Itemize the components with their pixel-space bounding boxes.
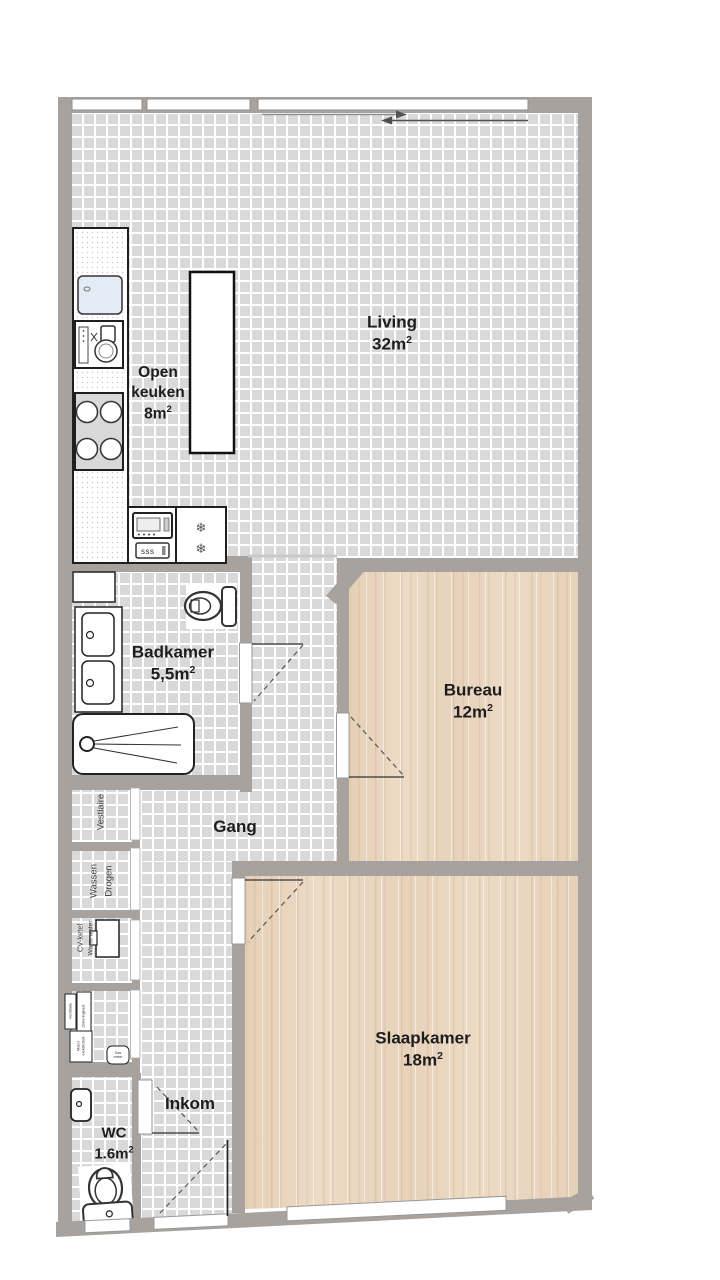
door-vestiaire: [131, 788, 141, 840]
room-name: Bureau: [444, 680, 503, 702]
label-meter-ventilatie: Ventilatie: [68, 1003, 73, 1019]
fridge-icon: ❄ ❄: [176, 507, 226, 563]
oven-label: sss: [141, 547, 155, 556]
room-name: Slaapkamer: [375, 1028, 470, 1050]
snowflake-icon: ❄: [196, 541, 207, 556]
window-wc-bottom: [85, 1219, 130, 1233]
front-door-swing: [160, 1140, 228, 1216]
door-wassen-drogen: [131, 848, 141, 910]
door-meterkast: [131, 990, 141, 1058]
room-area: 1.6m2: [94, 1144, 133, 1165]
room-name: Living: [367, 312, 417, 334]
room-name: Gang: [213, 816, 256, 838]
label-meter-zekeringkast: Zekeringkast: [82, 1005, 87, 1028]
snowflake-icon: ❄: [196, 520, 207, 535]
cooktop-icon: [75, 393, 123, 470]
shower-icon: [73, 714, 194, 774]
label-slaapkamer: Slaapkamer 18m2: [375, 1028, 470, 1073]
window-top-2: [147, 99, 250, 110]
label-meter-gas: Gas meter: [114, 1051, 123, 1059]
door-slaapkamer: [232, 878, 245, 944]
label-warm-water: Warm water: [88, 921, 95, 956]
label-vestiaire: Vestiaire: [96, 794, 107, 830]
kitchen-sink: [78, 276, 122, 314]
window-top-1: [72, 99, 142, 110]
floorplan: sss ❄ ❄: [0, 0, 720, 1280]
door-badkamer: [240, 643, 253, 703]
label-meter-elektriciteit: Meter elektriciteit: [76, 1037, 85, 1056]
double-sink: [75, 607, 122, 712]
room-name: keuken: [131, 384, 184, 404]
label-gang: Gang: [213, 816, 256, 838]
toilet-icon: [185, 583, 237, 629]
wc-sink: [71, 1089, 91, 1121]
label-wc: WC 1.6m2: [94, 1124, 133, 1165]
label-cv-ketel: CV-ketel: [76, 924, 85, 952]
label-badkamer: Badkamer 5,5m2: [132, 642, 214, 687]
room-name: Inkom: [165, 1093, 215, 1115]
label-bureau: Bureau 12m2: [444, 680, 503, 725]
sliding-door-arrows-icon: [262, 111, 528, 125]
wall-chamfer-bureau: [331, 565, 361, 600]
wall-outer-bottom: [56, 1196, 592, 1237]
room-area: 5,5m2: [132, 664, 214, 686]
microwave-oven-icon: sss: [128, 507, 176, 563]
room-area: 32m2: [367, 334, 417, 356]
label-drogen: Drogen: [104, 865, 115, 896]
kitchen-island: [190, 272, 234, 453]
room-area: 18m2: [375, 1050, 470, 1072]
room-name: Badkamer: [132, 642, 214, 664]
door-bureau: [337, 713, 350, 778]
room-area: 8m2: [131, 404, 184, 425]
window-top-3: [258, 99, 528, 110]
room-name: Open: [131, 363, 184, 383]
dishwasher-icon: [75, 321, 123, 368]
door-wc: [138, 1080, 152, 1134]
label-wassen: Wassen: [89, 864, 100, 898]
label-living: Living 32m2: [367, 312, 417, 357]
room-area: 12m2: [444, 702, 503, 724]
wc-toilet-icon: [78, 1163, 134, 1226]
label-open-keuken: Open keuken 8m2: [131, 363, 184, 425]
room-name: WC: [94, 1124, 133, 1144]
door-cv-ketel: [131, 920, 141, 980]
bathroom-cabinet: [73, 572, 115, 602]
plan-overlay: sss ❄ ❄: [0, 0, 720, 1280]
label-inkom: Inkom: [165, 1093, 215, 1115]
kitchen-counter: [73, 228, 128, 563]
